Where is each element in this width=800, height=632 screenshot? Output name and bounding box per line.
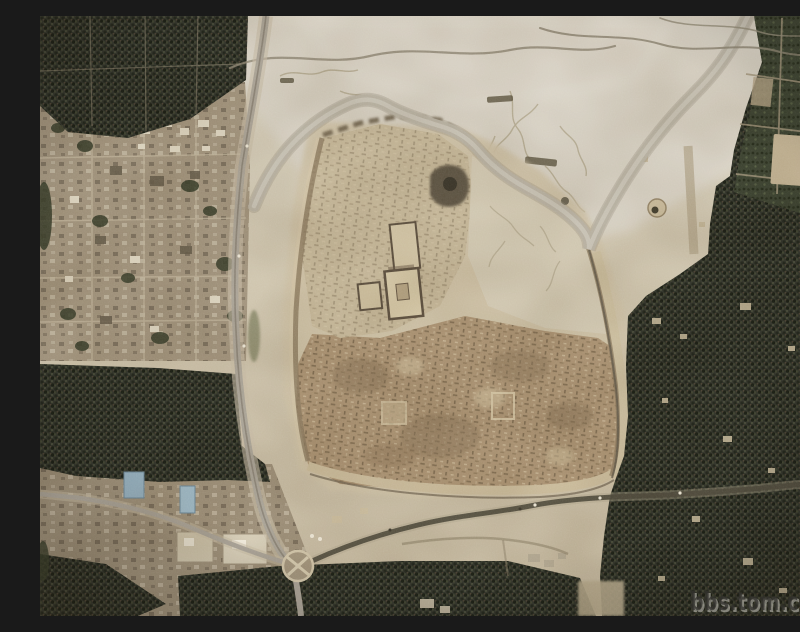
watermark: bbs.tom.com bbs.tom.com	[690, 587, 800, 616]
photo-texture-overlays	[40, 16, 800, 616]
vignette	[40, 16, 800, 616]
satellite-image: bbs.tom.com bbs.tom.com	[40, 16, 800, 616]
satellite-photo: bbs.tom.com bbs.tom.com	[40, 16, 800, 616]
watermark-text: bbs.tom.com	[690, 587, 800, 616]
